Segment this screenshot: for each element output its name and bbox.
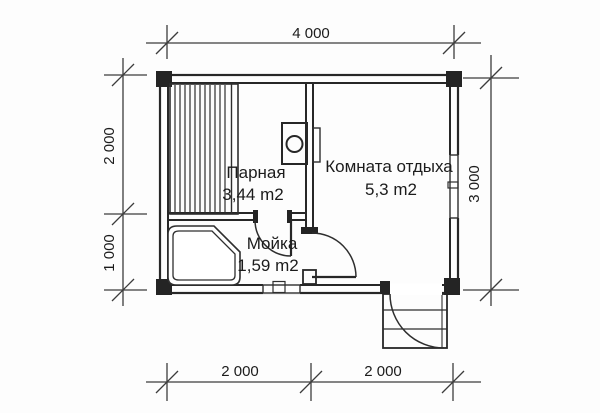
dim-bottom-left-label: 2 000 (221, 363, 259, 380)
dim-top-label: 4 000 (292, 25, 330, 42)
entry-jamb (380, 281, 390, 294)
rest-room-name: Комната отдыха (325, 157, 453, 176)
dimension-left: 2 000 1 000 (101, 58, 147, 306)
steam-room-name: Парная (226, 163, 285, 182)
dim-bottom-right-label: 2 000 (364, 363, 402, 380)
entrance-door-arc (390, 294, 444, 348)
floor-plan-drawing: 4 000 2 000 1 000 3 000 2 000 2 000 (0, 0, 600, 413)
entry-opening (390, 284, 442, 296)
door-wash-rest (312, 233, 356, 277)
dim-left-lower-label: 1 000 (101, 234, 118, 272)
shower-tray (168, 226, 240, 285)
steam-room-area: 3,44 m2 (222, 185, 283, 204)
stove-icon (282, 123, 320, 164)
dimension-top: 4 000 (146, 25, 481, 59)
wash-room-name: Мойка (247, 234, 298, 253)
floor-plan-canvas: 4 000 2 000 1 000 3 000 2 000 2 000 (0, 0, 600, 413)
dim-right-label: 3 000 (466, 165, 483, 203)
dim-left-upper-label: 2 000 (101, 127, 118, 165)
rest-room-area: 5,3 m2 (365, 180, 417, 199)
dimension-right: 3 000 (463, 55, 519, 306)
wash-room-area: 1,59 m2 (237, 256, 298, 275)
dimension-bottom: 2 000 2 000 (146, 363, 481, 401)
